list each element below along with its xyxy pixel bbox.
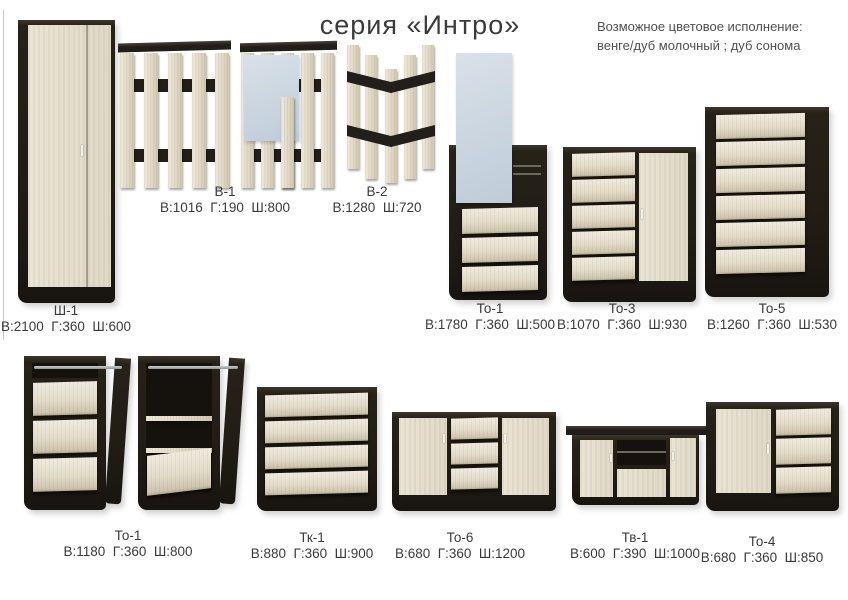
shoe-flap [572, 230, 635, 255]
shelf-edge [513, 173, 541, 175]
figure-tv1-tv-stand [566, 426, 706, 514]
product-label-to4: То-4 В:680 Г:360 Ш:850 [682, 534, 842, 566]
figure-to4-shoe-cabinet [706, 402, 839, 511]
shoe-flap [716, 248, 805, 274]
figure-v2-corner-hanger [347, 45, 435, 183]
product-label-v2: В-2 В:1280 Ш:720 [297, 184, 457, 216]
hanger-slat [321, 53, 334, 188]
cabinet-door-left [580, 440, 613, 497]
shoe-flap [716, 194, 805, 220]
cabinet-door-left [399, 418, 447, 495]
product-dims: В:880 Г:360 Ш:900 [232, 546, 392, 562]
product-label-v1: В-1 В:1016 Г:190 Ш:800 [145, 184, 305, 216]
shoe-flap [716, 221, 805, 247]
color-note-line1: Возможное цветовое исполнение: [597, 18, 837, 37]
figure-to1-low-open [138, 356, 242, 512]
door-handle [81, 145, 83, 156]
hanger-top-shelf [118, 41, 231, 53]
shoe-flap [451, 467, 498, 489]
hanger-slat [144, 53, 158, 188]
shoe-flap [776, 466, 831, 493]
shoe-flap [462, 265, 538, 292]
shoe-flap [451, 442, 498, 464]
product-code: То-6 [380, 530, 540, 546]
cabinet-side-panel [105, 358, 131, 505]
wardrobe-door [28, 25, 111, 287]
cabinet-door-right [502, 418, 549, 495]
product-code: То-4 [682, 534, 842, 550]
hanger-slat [301, 53, 314, 188]
color-note-line2: венге/дуб молочный ; дуб сонома [597, 37, 837, 56]
product-label-to6: То-6 В:680 Г:360 Ш:1200 [380, 530, 540, 562]
figure-to3-shoe-cabinet [563, 147, 696, 302]
shelf-edge [617, 451, 666, 453]
shoe-flap [462, 207, 538, 234]
product-code: В-2 [297, 184, 457, 200]
shoe-flap [265, 419, 368, 444]
page-edge-line [3, 10, 4, 340]
product-code: То-3 [542, 301, 702, 317]
shoe-flap [265, 393, 368, 418]
product-code: То-1 [48, 528, 208, 544]
shoe-flap [572, 152, 635, 177]
product-dims: В:1260 Г:360 Ш:530 [692, 317, 848, 333]
hanger-slat [347, 45, 359, 169]
hanger-top-shelf [240, 41, 337, 53]
product-code: Тк-1 [232, 530, 392, 546]
figure-to1-low-closed [24, 356, 128, 512]
shoe-flap [716, 113, 805, 139]
hanger-slat [422, 45, 434, 169]
shoe-flap [776, 408, 831, 435]
figure-to1-tall-shoe-cabinet [449, 53, 551, 300]
product-dims: В:1180 Г:360 Ш:800 [48, 544, 208, 560]
hanger-slat [168, 53, 182, 188]
product-label-to5: То-5 В:1260 Г:360 Ш:530 [692, 301, 848, 333]
shoe-flap [33, 381, 97, 416]
page-title: серия «Интро» [280, 10, 560, 41]
cabinet-door [716, 409, 771, 493]
product-label-to1-low: То-1 В:1180 Г:360 Ш:800 [48, 528, 208, 560]
catalog-page: серия «Интро» Возможное цветовое исполне… [0, 0, 848, 600]
door-handle [672, 452, 674, 460]
center-panel [617, 469, 666, 497]
hanger-slat [404, 55, 416, 179]
figure-v1-hanger-mirror [240, 42, 337, 188]
tv-top-panel [566, 426, 706, 435]
figure-tk1-shoe-cabinet [257, 387, 377, 511]
shoe-flap [33, 419, 97, 454]
color-note: Возможное цветовое исполнение: венге/дуб… [597, 18, 837, 56]
door-handle [610, 454, 612, 462]
product-label-to3: То-3 В:1070 Г:360 Ш:930 [542, 301, 702, 333]
cabinet-door-right [670, 438, 696, 497]
hanger-slat [281, 97, 294, 188]
figure-sh1-wardrobe [18, 20, 115, 303]
door-handle [767, 444, 769, 454]
cabinet-door [639, 153, 688, 281]
hanger-rod [148, 366, 238, 369]
shoe-flap [776, 437, 831, 464]
product-dims: В:680 Г:360 Ш:850 [682, 550, 842, 566]
product-code: То-5 [692, 301, 848, 317]
shoe-flap [265, 445, 368, 470]
door-seam [86, 25, 88, 287]
shoe-flap [572, 178, 635, 203]
product-dims: В:1070 Г:360 Ш:930 [542, 317, 702, 333]
product-dims: В:2100 Г:360 Ш:600 [0, 319, 132, 335]
figure-to6-shoe-cabinet [392, 412, 556, 511]
shoe-flap [33, 457, 97, 492]
shoe-flap [265, 471, 368, 496]
mirror-panel [456, 53, 512, 203]
cabinet-side-panel [219, 358, 245, 505]
hanger-rod [34, 366, 122, 369]
figure-to5-shoe-cabinet [705, 107, 829, 297]
door-handle [504, 434, 506, 443]
door-handle [443, 434, 445, 443]
product-dims: В:680 Г:360 Ш:1200 [380, 546, 540, 562]
figure-v1-hanger-plain [118, 42, 231, 188]
shoe-flap [462, 236, 538, 263]
product-label-sh1: Ш-1 В:2100 Г:360 Ш:600 [0, 303, 132, 335]
product-label-tk1: Тк-1 В:880 Г:360 Ш:900 [232, 530, 392, 562]
hanger-slat [120, 53, 134, 188]
door-handle [641, 209, 643, 219]
interior-shelf [146, 416, 212, 421]
hanger-slat [192, 53, 206, 188]
product-code: Ш-1 [0, 303, 132, 319]
shoe-flap [451, 417, 498, 439]
shoe-flap [572, 204, 635, 229]
shoe-flap [572, 256, 635, 281]
product-dims: В:1280 Ш:720 [297, 200, 457, 216]
shelf-edge [513, 165, 541, 167]
hanger-slat [365, 55, 377, 179]
product-dims: В:1016 Г:190 Ш:800 [145, 200, 305, 216]
shoe-flap [716, 140, 805, 166]
hanger-slat [215, 53, 229, 188]
shoe-flap-open [147, 448, 211, 496]
shoe-flap [716, 167, 805, 193]
